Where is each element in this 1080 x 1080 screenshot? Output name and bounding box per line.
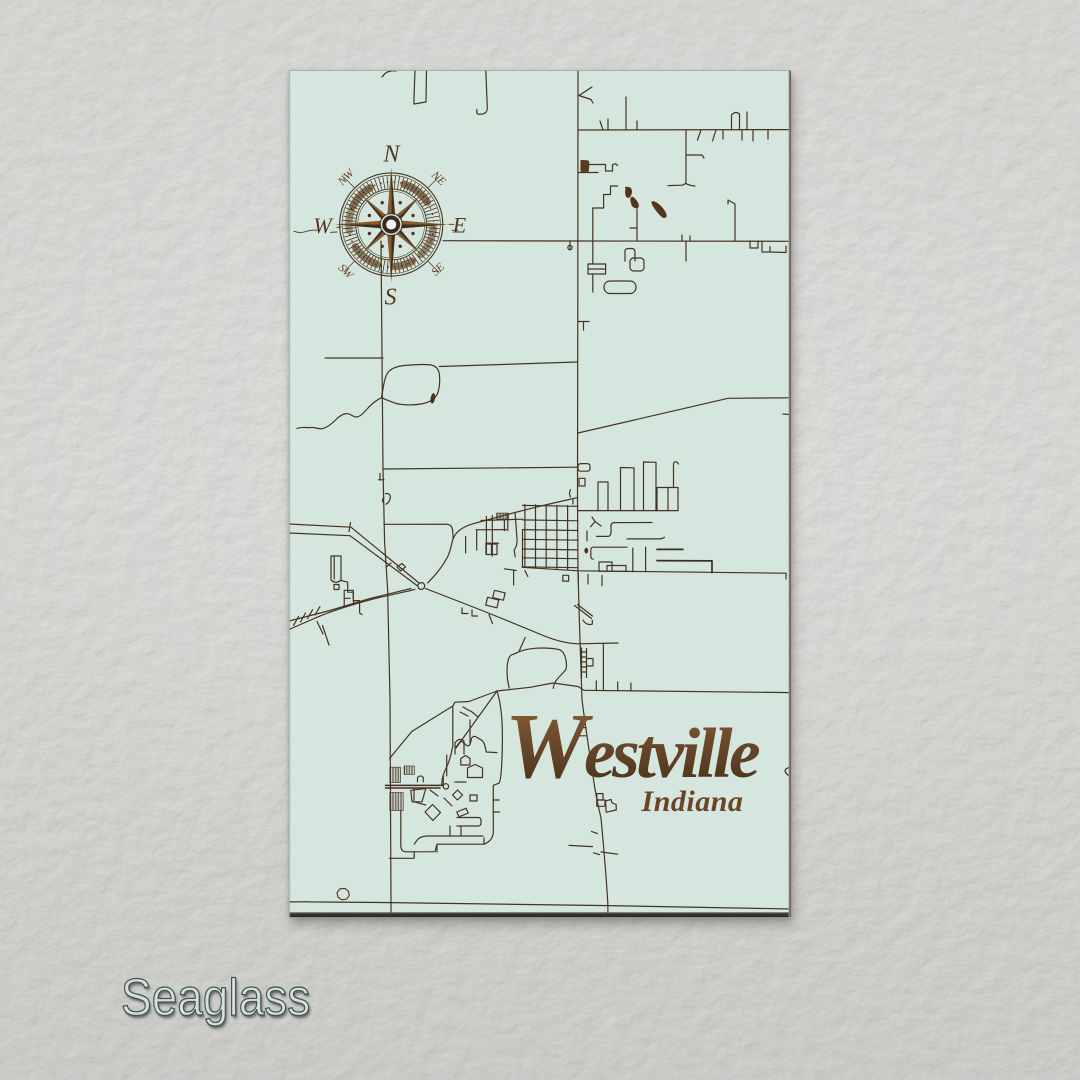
svg-text:Indiana: Indiana [641,785,744,818]
svg-text:N: N [382,142,401,168]
svg-text:W: W [313,213,333,238]
svg-text:E: E [452,213,467,238]
svg-text:S: S [385,285,397,311]
